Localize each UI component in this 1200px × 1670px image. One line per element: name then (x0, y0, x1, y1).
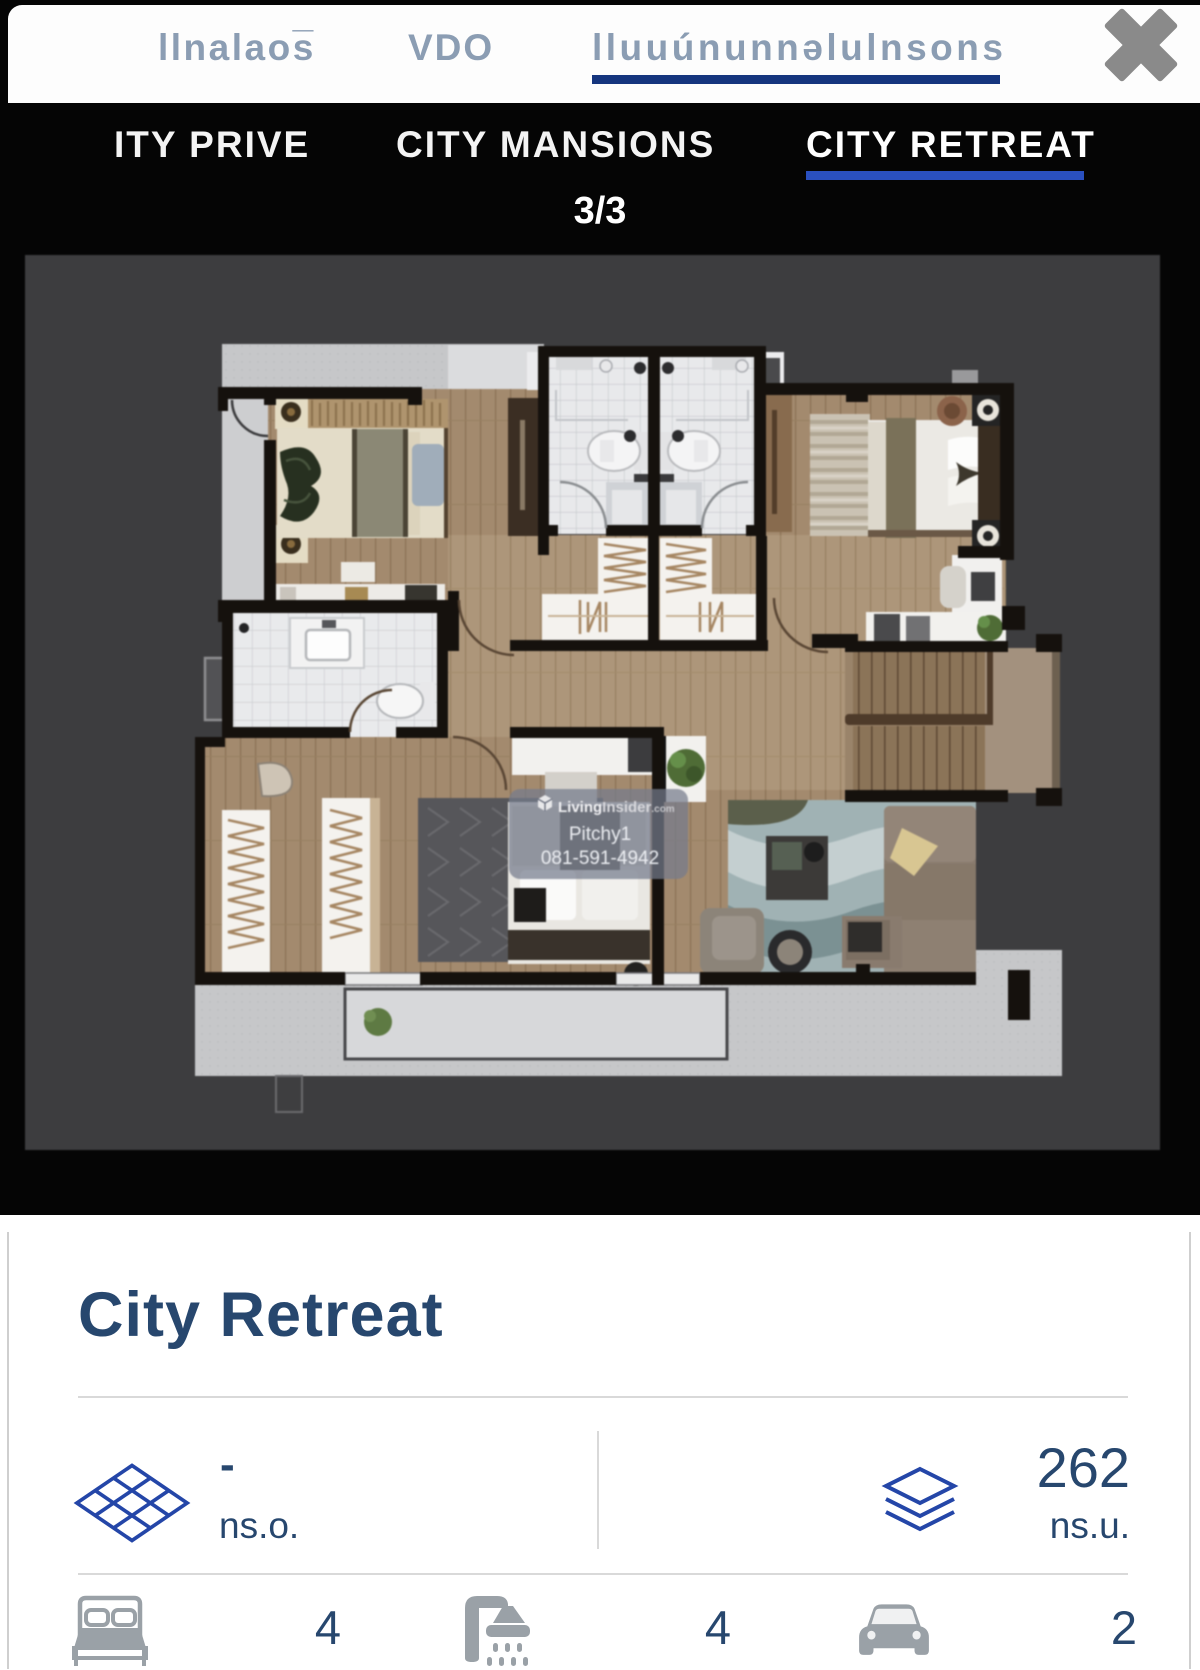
svg-text:081-591-4942: 081-591-4942 (541, 848, 659, 869)
svg-text:Pitchy1: Pitchy1 (569, 824, 631, 845)
